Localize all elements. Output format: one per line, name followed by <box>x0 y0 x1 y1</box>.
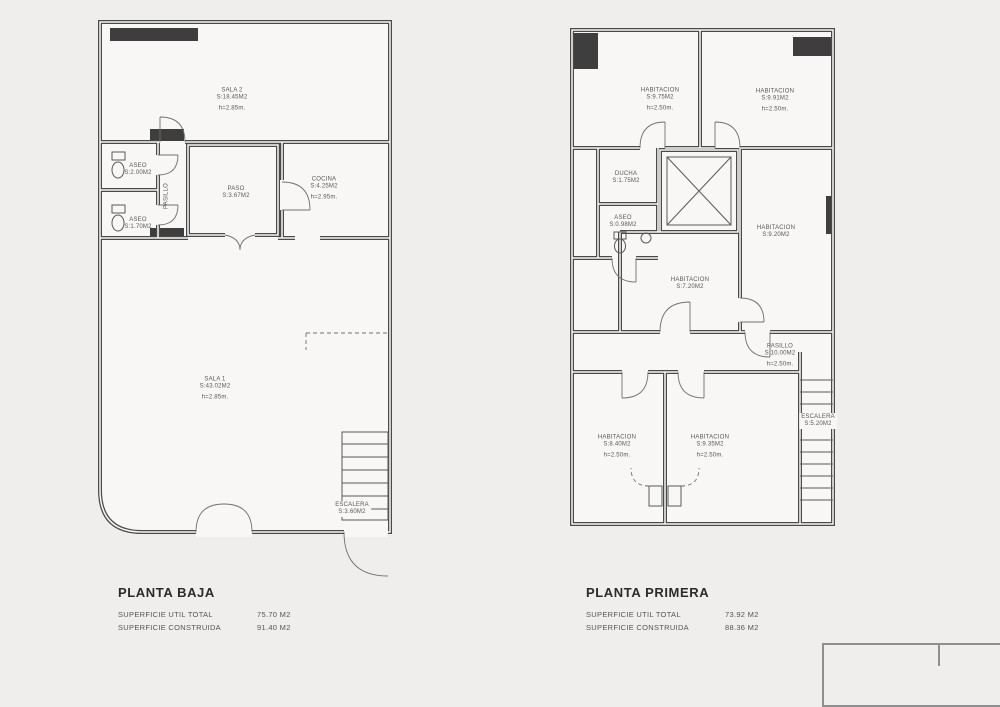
plan-baja-stats: SUPERFICIE UTIL TOTAL 75.70 M2 SUPERFICI… <box>118 608 291 634</box>
room-label-pasillo-primera: PASILLO S:10.00M2 h=2.50m. <box>765 344 796 369</box>
room-label-paso: PASO S:3.67M2 <box>222 186 249 200</box>
stat-value: 88.36 M2 <box>725 623 759 632</box>
title-block-divider <box>938 643 940 666</box>
plan-primera-footer: PLANTA PRIMERA SUPERFICIE UTIL TOTAL 73.… <box>586 585 759 634</box>
stat-label: SUPERFICIE CONSTRUIDA <box>586 623 725 632</box>
room-label-pasillo-baja: PASILLO <box>164 183 171 209</box>
room-label-ducha: DUCHA S:1.75M2 <box>612 171 639 185</box>
room-label-habitacion-1: HABITACION S:9.75M2 h=2.50m. <box>641 88 679 113</box>
room-label-escalera-baja: ESCALERA S:3.60M2 <box>333 501 371 517</box>
stat-label: SUPERFICIE UTIL TOTAL <box>118 610 257 619</box>
stat-row: SUPERFICIE CONSTRUIDA 91.40 M2 <box>118 621 291 634</box>
floorplan-drawing <box>0 0 1000 666</box>
stat-value: 91.40 M2 <box>257 623 291 632</box>
room-label-aseo-2: ASEO S:1.70M2 <box>124 217 151 231</box>
room-label-escalera-primera: ESCALERA S:5.20M2 <box>799 413 837 429</box>
room-label-aseo-primera: ASEO S:0.98M2 <box>609 215 636 229</box>
room-label-habitacion-5: HABITACION S:8.40M2 h=2.50m. <box>598 435 636 460</box>
plan-baja-footer: PLANTA BAJA SUPERFICIE UTIL TOTAL 75.70 … <box>118 585 291 634</box>
stat-label: SUPERFICIE UTIL TOTAL <box>586 610 725 619</box>
room-label-cocina: COCINA S:4.25M2 h=2.95m. <box>310 177 337 202</box>
room-label-habitacion-3: HABITACION S:7.20M2 <box>671 277 709 291</box>
stat-row: SUPERFICIE UTIL TOTAL 73.92 M2 <box>586 608 759 621</box>
room-label-habitacion-2: HABITACION S:9.91M2 h=2.50m. <box>756 89 794 114</box>
room-label-aseo-1: ASEO S:2.00M2 <box>124 163 151 177</box>
room-label-sala-1: SALA 1 S:43.02M2 h=2.85m. <box>200 377 231 402</box>
plan-primera-title: PLANTA PRIMERA <box>586 585 759 600</box>
room-label-habitacion-6: HABITACION S:9.35M2 h=2.50m. <box>691 435 729 460</box>
room-label-sala-2: SALA 2 S:18.45M2 h=2.85m. <box>217 88 248 113</box>
title-block <box>822 643 1000 707</box>
stat-value: 73.92 M2 <box>725 610 759 619</box>
plan-primera-stats: SUPERFICIE UTIL TOTAL 73.92 M2 SUPERFICI… <box>586 608 759 634</box>
room-label-habitacion-4: HABITACION S:9.20M2 <box>757 225 795 239</box>
plan-baja-title: PLANTA BAJA <box>118 585 291 600</box>
stat-value: 75.70 M2 <box>257 610 291 619</box>
stat-row: SUPERFICIE CONSTRUIDA 88.36 M2 <box>586 621 759 634</box>
stat-label: SUPERFICIE CONSTRUIDA <box>118 623 257 632</box>
stat-row: SUPERFICIE UTIL TOTAL 75.70 M2 <box>118 608 291 621</box>
